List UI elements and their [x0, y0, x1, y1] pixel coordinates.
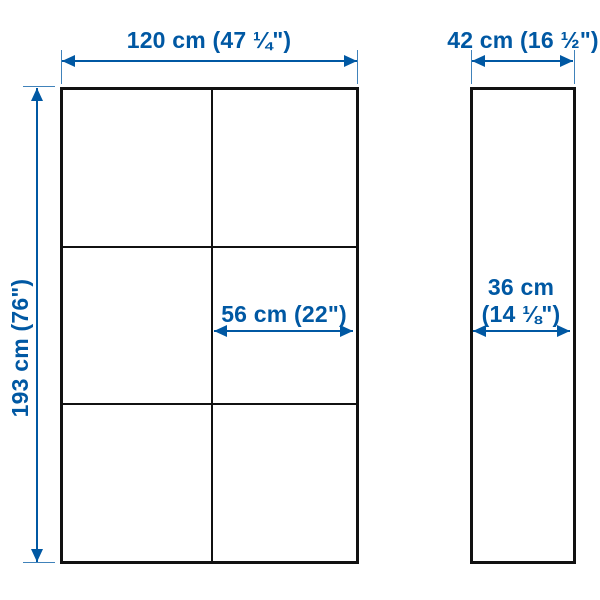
dimension-diagram: 120 cm (47 ¼") 42 cm (16 ½") 193 cm (76"… — [0, 0, 600, 600]
overall-width-arrow — [62, 60, 357, 62]
overall-depth-arrow — [472, 60, 573, 62]
inner-depth-arrow — [473, 330, 570, 332]
inner-depth-label-line1: 36 cm — [446, 274, 596, 301]
front-view-horizontal-divider-2 — [63, 403, 356, 405]
overall-height-arrow — [36, 88, 38, 562]
overall-width-label: 120 cm (47 ¼") — [59, 27, 359, 54]
extension-line — [61, 50, 62, 84]
extension-line — [23, 562, 55, 563]
extension-line — [574, 50, 575, 84]
front-view-horizontal-divider-1 — [63, 246, 356, 248]
overall-height-label: 193 cm (76") — [6, 198, 34, 498]
extension-line — [471, 50, 472, 84]
inner-width-arrow — [214, 330, 353, 332]
extension-line — [357, 50, 358, 84]
extension-line — [23, 86, 55, 87]
inner-depth-label: 36 cm (14 ⅛") — [446, 274, 596, 328]
inner-width-label: 56 cm (22") — [213, 301, 355, 328]
inner-depth-label-line2: (14 ⅛") — [446, 301, 596, 328]
